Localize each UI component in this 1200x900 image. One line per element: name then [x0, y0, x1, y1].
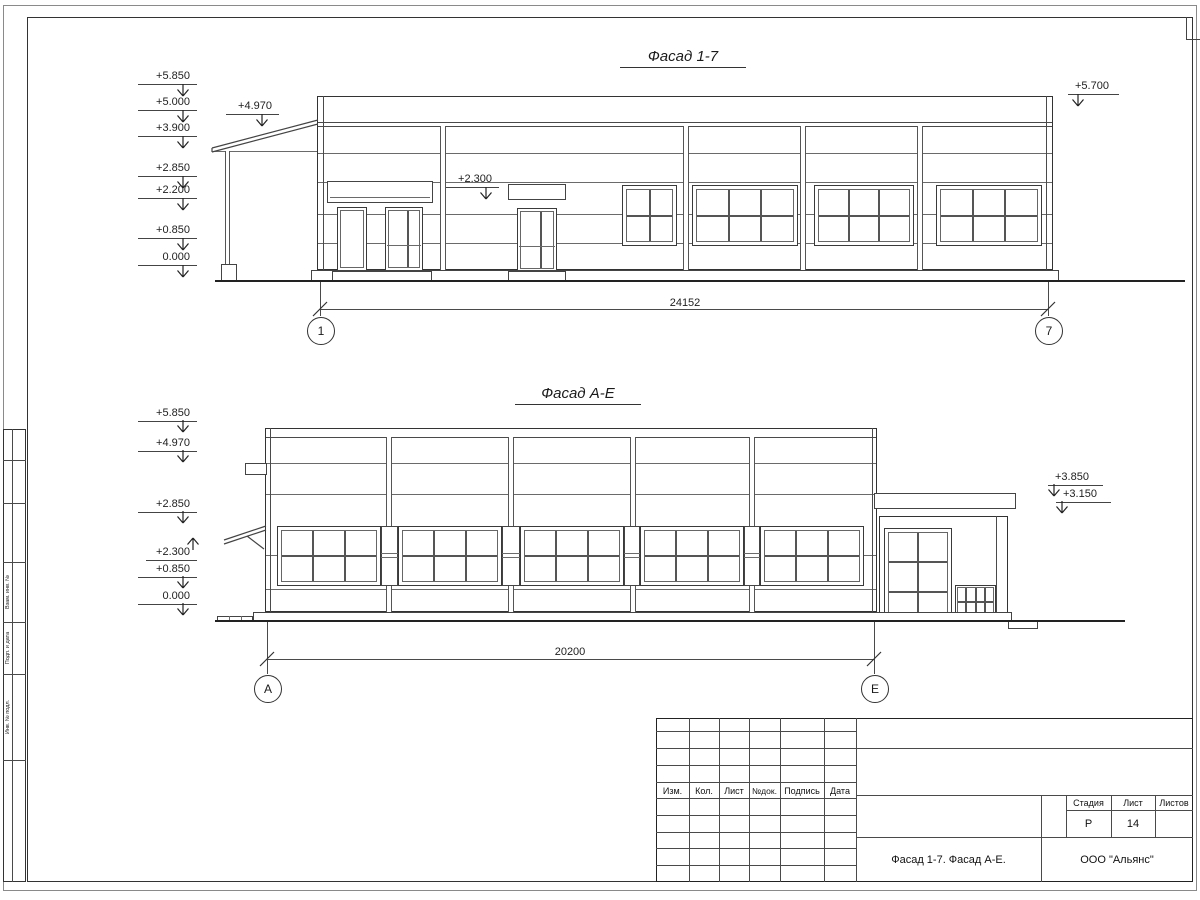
dimension-line	[267, 659, 874, 660]
margin-row-line	[3, 622, 26, 623]
tb-line	[856, 748, 1193, 749]
window-glazing	[402, 530, 498, 582]
facadeAE-title: Фасад А-Е	[515, 385, 641, 405]
tb-rev-header: №док.	[749, 783, 780, 798]
margin-row-line	[3, 503, 26, 504]
window-pane	[889, 563, 917, 591]
door-leaf	[389, 211, 407, 267]
elevation-mark: 0.000	[138, 251, 197, 266]
door-leaf	[521, 212, 540, 268]
window-pane	[797, 531, 827, 555]
elevation-mark: +2.200	[138, 184, 197, 199]
wall-bracket	[245, 463, 267, 475]
window-pane	[709, 557, 739, 581]
window-connector	[381, 526, 398, 586]
margin-row-line	[3, 674, 26, 675]
entrance-door-double	[385, 207, 423, 271]
window-pane	[403, 531, 433, 555]
margin-label: Инв. № подл.	[5, 700, 11, 734]
window-pane	[435, 557, 465, 581]
door-leaf	[341, 211, 363, 267]
annex-ground-step	[1008, 621, 1038, 629]
elevation-mark: +3.900	[138, 122, 197, 137]
axis-bubble: Е	[861, 675, 889, 703]
tb-line	[689, 718, 690, 882]
window-pane	[645, 531, 675, 555]
elevation-mark: +5.700	[1068, 80, 1119, 95]
tb-line	[749, 718, 750, 882]
window-pane	[974, 190, 1005, 215]
window-pane	[697, 217, 728, 242]
tb-line	[656, 765, 856, 766]
elevation-mark: +3.150	[1056, 488, 1111, 503]
tb-stage-value: Р	[1066, 811, 1111, 836]
tb-stage-label: Стадия	[1066, 796, 1111, 810]
window	[760, 526, 864, 586]
tb-line	[719, 718, 720, 882]
window-pane	[314, 531, 344, 555]
window-pane	[346, 531, 376, 555]
tb-line	[656, 848, 856, 849]
axis-bubble: 7	[1035, 317, 1063, 345]
annex-window	[884, 528, 952, 619]
window-pane	[282, 557, 312, 581]
window-glazing	[940, 189, 1038, 242]
elevation-mark: +5.850	[138, 70, 197, 85]
window-glazing	[818, 189, 910, 242]
window-glazing	[626, 189, 673, 242]
dimension-line	[320, 309, 1048, 310]
window-glazing	[524, 530, 620, 582]
tb-line	[656, 798, 856, 799]
window-pane	[467, 531, 497, 555]
dimension-value: 20200	[540, 646, 600, 658]
joint-line	[266, 589, 876, 590]
window-pane	[557, 557, 587, 581]
extension-line	[874, 622, 875, 674]
tb-sheet-value: 14	[1111, 811, 1155, 836]
tb-rev-header: Лист	[719, 783, 749, 798]
extension-line	[1048, 282, 1049, 316]
elevation-mark: +0.850	[138, 563, 197, 578]
window-pane	[697, 190, 728, 215]
window-pane	[941, 217, 972, 242]
axis-bubble: 1	[307, 317, 335, 345]
window-pane	[435, 531, 465, 555]
ground-line	[215, 620, 1125, 622]
window-pane	[919, 563, 947, 591]
pilaster	[917, 126, 923, 270]
window-pane	[986, 588, 993, 601]
window	[936, 185, 1042, 246]
tb-line	[656, 815, 856, 816]
connector-line	[381, 557, 398, 558]
window-connector	[502, 526, 520, 586]
window-pane	[919, 533, 947, 561]
window-pane	[282, 531, 312, 555]
window-pane	[974, 217, 1005, 242]
extension-line	[267, 622, 268, 674]
corner-band	[872, 428, 873, 612]
margin-row-line	[3, 760, 26, 761]
window	[398, 526, 502, 586]
window-pane	[829, 531, 859, 555]
elevation-mark: +4.970	[226, 100, 279, 115]
window-pane	[977, 588, 984, 601]
window-pane	[941, 190, 972, 215]
window-pane	[557, 531, 587, 555]
window-pane	[525, 557, 555, 581]
pilaster	[440, 126, 446, 270]
window-pane	[958, 588, 965, 601]
pilaster	[683, 126, 689, 270]
window-pane	[651, 217, 673, 242]
window-pane	[467, 557, 497, 581]
parapet-line	[266, 437, 876, 438]
window-pane	[677, 531, 707, 555]
margin-label: Подп. и дата	[5, 632, 11, 664]
window-pane	[525, 531, 555, 555]
window-pane	[850, 217, 879, 242]
ground-line	[215, 280, 1185, 282]
extension-line	[320, 282, 321, 316]
tb-rev-header: Кол.	[689, 783, 719, 798]
elevation-mark: 0.000	[138, 590, 197, 605]
tb-line	[656, 865, 856, 866]
annex-corner-band	[996, 516, 997, 621]
elevation-mark: +3.850	[1048, 471, 1103, 486]
window-pane	[762, 217, 793, 242]
elevation-mark: +2.850	[138, 498, 197, 513]
tb-rev-header: Изм.	[656, 783, 689, 798]
window-pane	[677, 557, 707, 581]
corner-band	[270, 428, 271, 612]
margin-table-divider	[12, 429, 13, 882]
window	[622, 185, 677, 246]
window	[814, 185, 914, 246]
tb-line	[656, 748, 856, 749]
window-pane	[819, 190, 848, 215]
window-pane	[819, 217, 848, 242]
window-pane	[850, 190, 879, 215]
window-pane	[346, 557, 376, 581]
elevation-mark: +2.300	[146, 546, 197, 561]
elevation-mark: +5.000	[138, 96, 197, 111]
elevation-mark: +2.300	[446, 173, 499, 188]
connector-line	[502, 553, 520, 554]
tb-organization: ООО "Альянс"	[1041, 838, 1193, 881]
window-pane	[880, 190, 909, 215]
tb-drawing-name: Фасад 1-7. Фасад А-Е.	[856, 838, 1041, 881]
window-pane	[829, 557, 859, 581]
connector-line	[502, 557, 520, 558]
elevation-mark: +0.850	[138, 224, 197, 239]
sign-band	[508, 184, 566, 200]
window-pane	[403, 557, 433, 581]
window-pane	[730, 217, 761, 242]
elevation-mark: +2.850	[138, 162, 197, 177]
tb-sheets-label: Листов	[1155, 796, 1193, 810]
frame-corner-box	[1186, 17, 1200, 40]
window-connector	[624, 526, 640, 586]
corner-band	[1046, 96, 1047, 270]
sign-band-line	[330, 197, 430, 198]
tb-rev-header: Подпись	[780, 783, 824, 798]
connector-line	[744, 553, 760, 554]
window-pane	[765, 531, 795, 555]
door-leaf	[542, 212, 553, 268]
door-rail	[519, 246, 555, 247]
connector-line	[624, 553, 640, 554]
tb-line	[824, 718, 825, 882]
window-pane	[314, 557, 344, 581]
window-pane	[709, 531, 739, 555]
window	[277, 526, 381, 586]
window-pane	[889, 533, 917, 561]
canopy-post	[225, 151, 230, 264]
entrance-door-double	[517, 208, 557, 272]
annex-fascia	[874, 493, 1016, 509]
elevation-mark: +4.970	[138, 437, 197, 452]
joint-line	[266, 494, 876, 495]
window-pane	[889, 593, 917, 614]
entrance-door-single	[337, 207, 367, 271]
dimension-value: 24152	[655, 297, 715, 309]
connector-line	[624, 557, 640, 558]
parapet-line	[318, 122, 1052, 123]
margin-row-line	[3, 562, 26, 563]
tb-rev-header: Дата	[824, 783, 856, 798]
tb-line	[780, 718, 781, 882]
window-glazing	[644, 530, 740, 582]
window-pane	[797, 557, 827, 581]
sign-band	[327, 181, 433, 203]
connector-line	[381, 553, 398, 554]
elevation-mark: +5.850	[138, 407, 197, 422]
door-rail	[387, 245, 421, 246]
corner-band	[323, 96, 324, 282]
window	[520, 526, 624, 586]
connector-line	[744, 557, 760, 558]
door-leaf	[409, 211, 419, 267]
window-pane	[762, 190, 793, 215]
margin-row-line	[3, 460, 26, 461]
window-glazing	[888, 532, 948, 615]
facade17-title: Фасад 1-7	[620, 48, 746, 68]
window-pane	[1006, 190, 1037, 215]
tb-line	[656, 731, 856, 732]
window-pane	[627, 217, 649, 242]
axis-bubble: А	[254, 675, 282, 703]
tb-sheet-label: Лист	[1111, 796, 1155, 810]
window-glazing	[281, 530, 377, 582]
window-glazing	[764, 530, 860, 582]
window-pane	[651, 190, 673, 215]
window-pane	[645, 557, 675, 581]
pilaster	[800, 126, 806, 270]
window-pane	[589, 531, 619, 555]
margin-label: Взам. инв. №	[5, 575, 11, 609]
window-pane	[967, 588, 974, 601]
drawing-sheet: Взам. инв. № Подп. и дата Инв. № подл. Ф…	[0, 0, 1200, 900]
tb-line	[656, 832, 856, 833]
window-pane	[880, 217, 909, 242]
window-pane	[627, 190, 649, 215]
window-pane	[730, 190, 761, 215]
window-pane	[589, 557, 619, 581]
window-pane	[1006, 217, 1037, 242]
window-glazing	[696, 189, 794, 242]
window-pane	[919, 593, 947, 614]
window-pane	[765, 557, 795, 581]
joint-line	[266, 463, 876, 464]
window-connector	[744, 526, 760, 586]
window	[640, 526, 744, 586]
window	[692, 185, 798, 246]
